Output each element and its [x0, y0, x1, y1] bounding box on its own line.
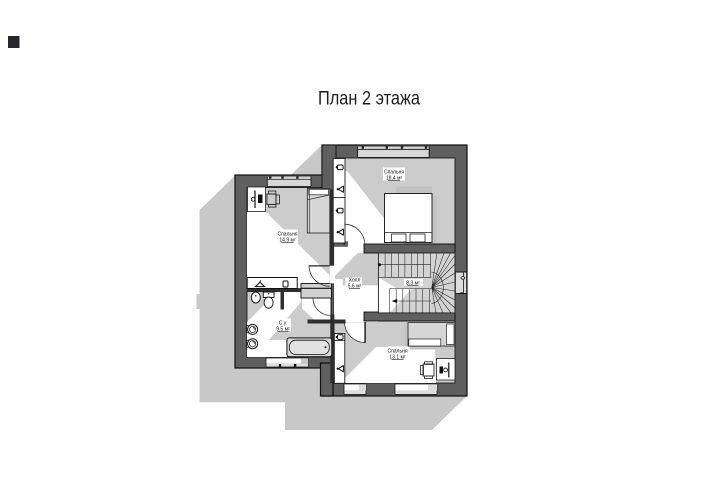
svg-text:План 2 этажа: План 2 этажа [318, 89, 420, 110]
